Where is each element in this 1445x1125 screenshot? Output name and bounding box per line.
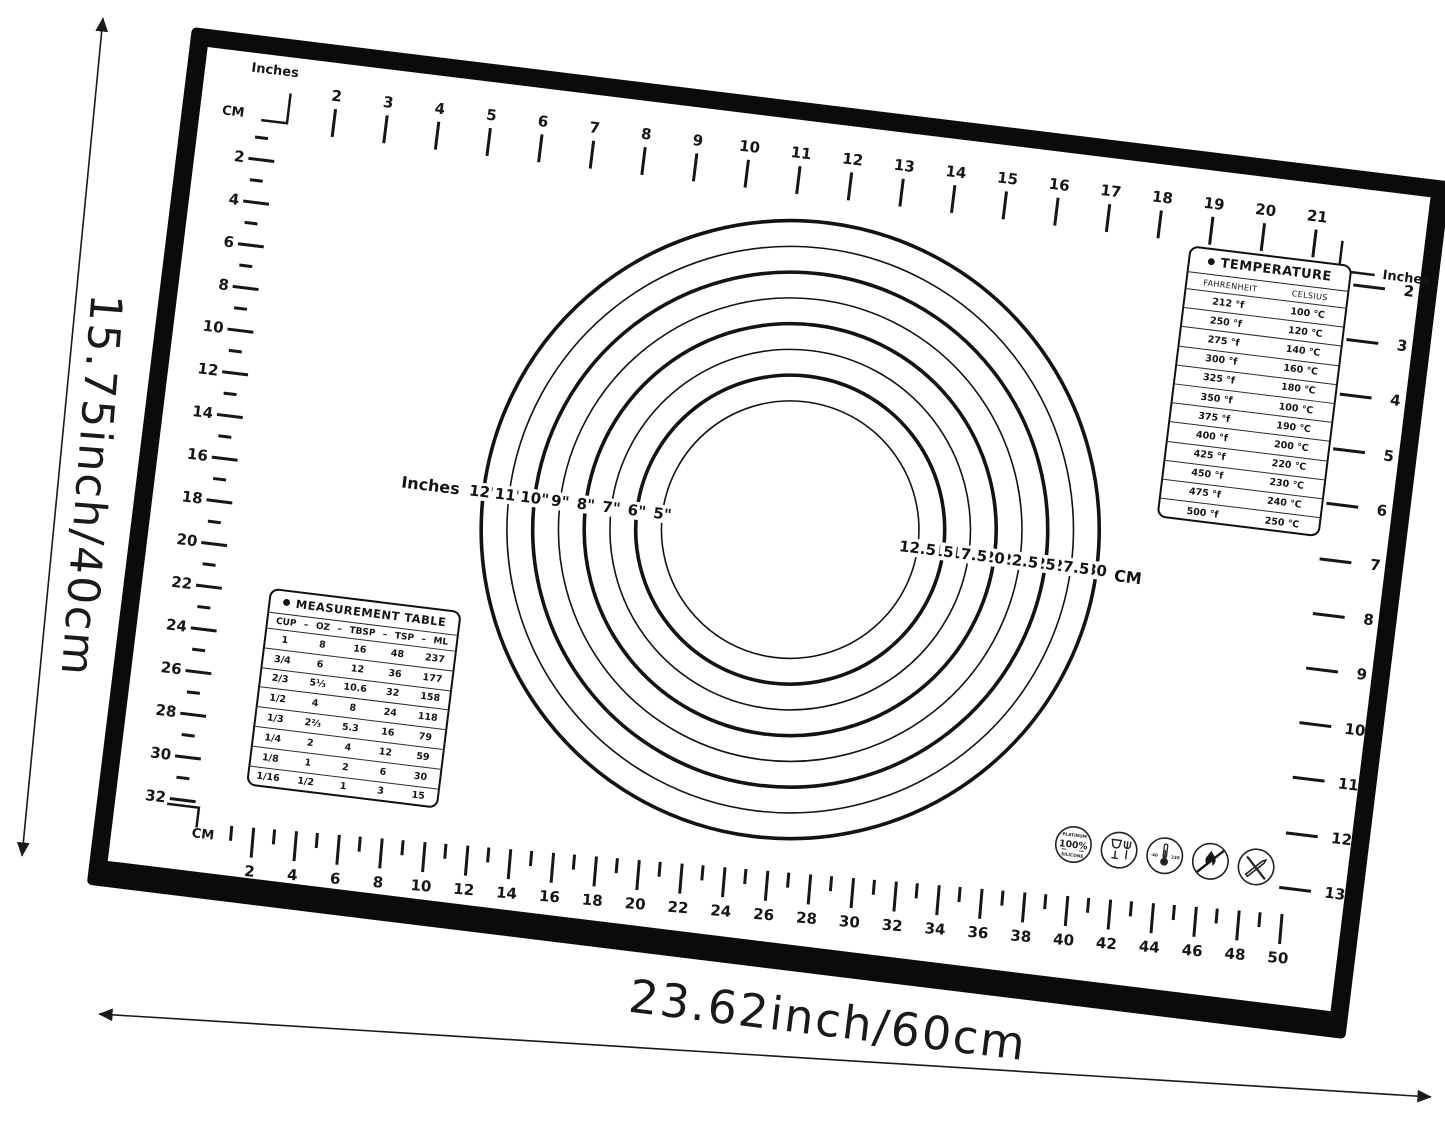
ring-inch-label: 6" [624,500,650,521]
measurement-value: 1 [288,755,327,771]
measuring-ring-circle [561,300,1020,759]
header-separator: – [337,624,343,634]
temp-min-text: -40 [1150,852,1158,858]
measuring-ring-circle [475,214,1106,845]
header-separator: – [421,634,427,644]
measurement-value: 12 [366,745,405,761]
header-separator: – [382,629,388,639]
measurement-table-rows: 1816482373/4612361772/35⅓10.6321581/2482… [248,628,455,808]
circle-cm-unit-label: CM [1110,566,1146,589]
measurement-value: 36 [376,666,415,682]
measurement-value: 118 [408,710,447,726]
measurement-value: 16 [368,725,407,741]
measurement-value: 1 [324,779,363,795]
temperature-table-rows: 212 °f100 ℃250 °f120 ℃275 °f140 ℃300 °f1… [1159,288,1346,536]
measurement-value: 8 [303,637,342,653]
measurement-value: 237 [415,651,454,667]
measurement-value: 6 [363,764,402,780]
measurement-value: 2⅔ [293,716,332,732]
badge-center-text: 100% [1058,838,1089,853]
measuring-ring-circle [647,386,934,673]
measurement-value: 1/16 [249,770,288,786]
measurement-value: 59 [403,749,442,765]
product-diagram: 15.75inch/40cm 23.62inch/60cm Inches CM … [0,0,1445,1125]
pastry-mat: Inches CM Inches CM 23456789101112131415… [87,27,1445,1039]
measurement-value: 5.3 [331,720,370,736]
measurement-value: 48 [378,646,417,662]
measurement-value: 79 [406,730,445,746]
measurement-column-header: OZ [315,621,330,633]
measurement-value: 32 [373,686,412,702]
measurement-value: 24 [371,705,410,721]
measurement-value: 12 [338,661,377,677]
header-separator: – [303,620,309,630]
ring-inch-label: 5" [649,504,675,525]
temperature-table: ● TEMPERATURE FAHRENHEIT CELSIUS 212 °f1… [1156,245,1352,537]
measurement-table: ● MEASUREMENT TABLE CUP–OZ–TBSP–TSP–ML 1… [246,588,462,809]
bullet-icon: ● [282,598,291,608]
measurement-value: 30 [401,769,440,785]
measurement-value: 8 [333,701,372,717]
measuring-ring-circle [589,329,991,731]
measurement-value: 4 [328,740,367,756]
measuring-ring-circle [503,243,1077,817]
measurement-value: 10.6 [336,681,375,697]
ring-inch-label: 7" [598,497,624,518]
bullet-icon: ● [1207,257,1216,267]
measurement-value: 2/3 [261,672,300,688]
measurement-value: 1/3 [256,711,295,727]
measuring-ring-circle [618,357,962,701]
measurement-value: 15 [399,788,438,804]
measurement-value: 4 [296,696,335,712]
measurement-column-header: TSP [394,631,414,643]
measurement-value: 158 [411,690,450,706]
ring-inch-label: 9" [547,491,573,512]
measurement-value: 16 [340,642,379,658]
measurement-value: 1/2 [286,775,325,791]
measurement-value: 1/2 [258,691,297,707]
ring-inch-label: 8" [573,494,599,515]
no-flame-icon [1187,837,1233,886]
temp-max-text: 230 [1171,854,1180,860]
measuring-ring-circle [446,185,1135,874]
measurement-column-header: TBSP [349,625,376,638]
food-safe-icon [1096,826,1142,875]
measurement-value: 1/4 [253,731,292,747]
temperature-range-icon: -40 230 [1142,831,1188,880]
badge-bottom-text: SILICONE [1061,851,1084,860]
measurement-value: 5⅓ [298,676,337,692]
measurement-column-header: CUP [275,616,297,628]
measurement-value: 2 [291,735,330,751]
no-knife-icon [1233,843,1279,892]
measurement-value: 1/8 [251,750,290,766]
measurement-value: 177 [413,671,452,687]
measurement-value: 6 [301,657,340,673]
measurement-value: 3 [361,784,400,800]
measurement-value: 3/4 [263,652,302,668]
measurement-column-header: ML [433,636,449,648]
measurement-value: 1 [265,633,304,649]
measurement-value: 2 [326,760,365,776]
platinum-silicone-badge-icon: PLATINUM 100% SILICONE [1050,820,1096,869]
